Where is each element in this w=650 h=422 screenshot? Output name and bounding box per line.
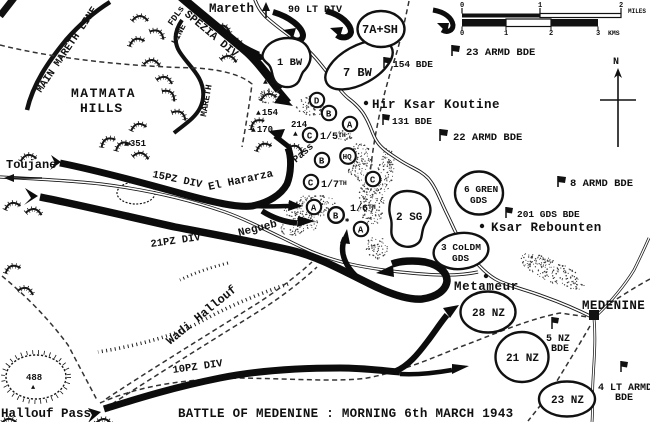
svg-text:21 NZ: 21 NZ: [506, 353, 539, 365]
svg-text:BATTLE OF MEDENINE : MORNING 6: BATTLE OF MEDENINE : MORNING 6th MARCH 1…: [178, 407, 513, 421]
svg-text:23 ARMD BDE: 23 ARMD BDE: [466, 47, 535, 59]
svg-text:0: 0: [460, 2, 464, 10]
svg-text:22 ARMD BDE: 22 ARMD BDE: [453, 132, 522, 144]
svg-text:GDS: GDS: [470, 195, 487, 206]
svg-text:MILES: MILES: [628, 8, 646, 15]
svg-text:6 GREN: 6 GREN: [464, 184, 499, 195]
svg-text:▲351: ▲351: [124, 139, 147, 149]
svg-text:BDE: BDE: [615, 393, 633, 404]
svg-text:0: 0: [460, 30, 464, 38]
svg-text:3 CoLDM: 3 CoLDM: [441, 242, 481, 253]
svg-text:1: 1: [504, 30, 508, 38]
svg-text:23 NZ: 23 NZ: [551, 395, 584, 407]
svg-text:2 SG: 2 SG: [396, 212, 423, 224]
svg-text:▲170: ▲170: [251, 125, 273, 135]
svg-text:A: A: [358, 225, 364, 235]
svg-text:N: N: [613, 57, 619, 68]
svg-text:3: 3: [596, 30, 600, 38]
svg-text:Hir Ksar Koutine: Hir Ksar Koutine: [372, 98, 500, 112]
svg-text:1 BW: 1 BW: [277, 57, 303, 69]
svg-text:▲154: ▲154: [256, 108, 279, 118]
svg-text:HILLS: HILLS: [80, 101, 123, 116]
svg-text:KMS: KMS: [608, 30, 620, 37]
svg-text:MATMATA: MATMATA: [71, 86, 136, 101]
svg-text:BDE: BDE: [551, 344, 569, 355]
svg-text:A: A: [347, 120, 353, 130]
svg-text:HQ: HQ: [343, 154, 353, 162]
svg-text:Ksar Rebounten: Ksar Rebounten: [491, 221, 602, 235]
svg-text:2: 2: [619, 2, 623, 10]
svg-text:7 BW: 7 BW: [343, 66, 373, 80]
svg-text:D: D: [314, 96, 320, 106]
svg-text:Toujane: Toujane: [6, 158, 56, 172]
svg-text:B: B: [326, 109, 332, 119]
svg-text:B: B: [319, 156, 325, 166]
svg-text:GDS: GDS: [452, 253, 469, 264]
svg-text:C: C: [370, 175, 376, 185]
svg-text:131 BDE: 131 BDE: [392, 116, 432, 127]
svg-text:B: B: [333, 211, 339, 221]
svg-text:Hallouf Pass: Hallouf Pass: [1, 407, 91, 421]
svg-text:8 ARMD BDE: 8 ARMD BDE: [570, 178, 633, 190]
svg-text:C: C: [308, 178, 314, 188]
svg-text:C: C: [307, 131, 313, 141]
svg-text:7A+SH: 7A+SH: [362, 23, 398, 37]
svg-text:MEDENINE: MEDENINE: [582, 299, 645, 313]
svg-text:201 GDS BDE: 201 GDS BDE: [517, 209, 580, 220]
svg-text:1: 1: [538, 2, 542, 10]
svg-text:Metameur: Metameur: [454, 280, 519, 294]
svg-text:A: A: [311, 203, 317, 213]
svg-text:2: 2: [549, 30, 553, 38]
svg-text:488: 488: [26, 373, 42, 383]
svg-text:28 NZ: 28 NZ: [472, 308, 505, 320]
svg-text:Mareth: Mareth: [209, 2, 254, 16]
svg-text:90 LT DIV: 90 LT DIV: [288, 5, 342, 16]
svg-text:154 BDE: 154 BDE: [393, 59, 433, 70]
svg-text:▲: ▲: [293, 130, 298, 139]
